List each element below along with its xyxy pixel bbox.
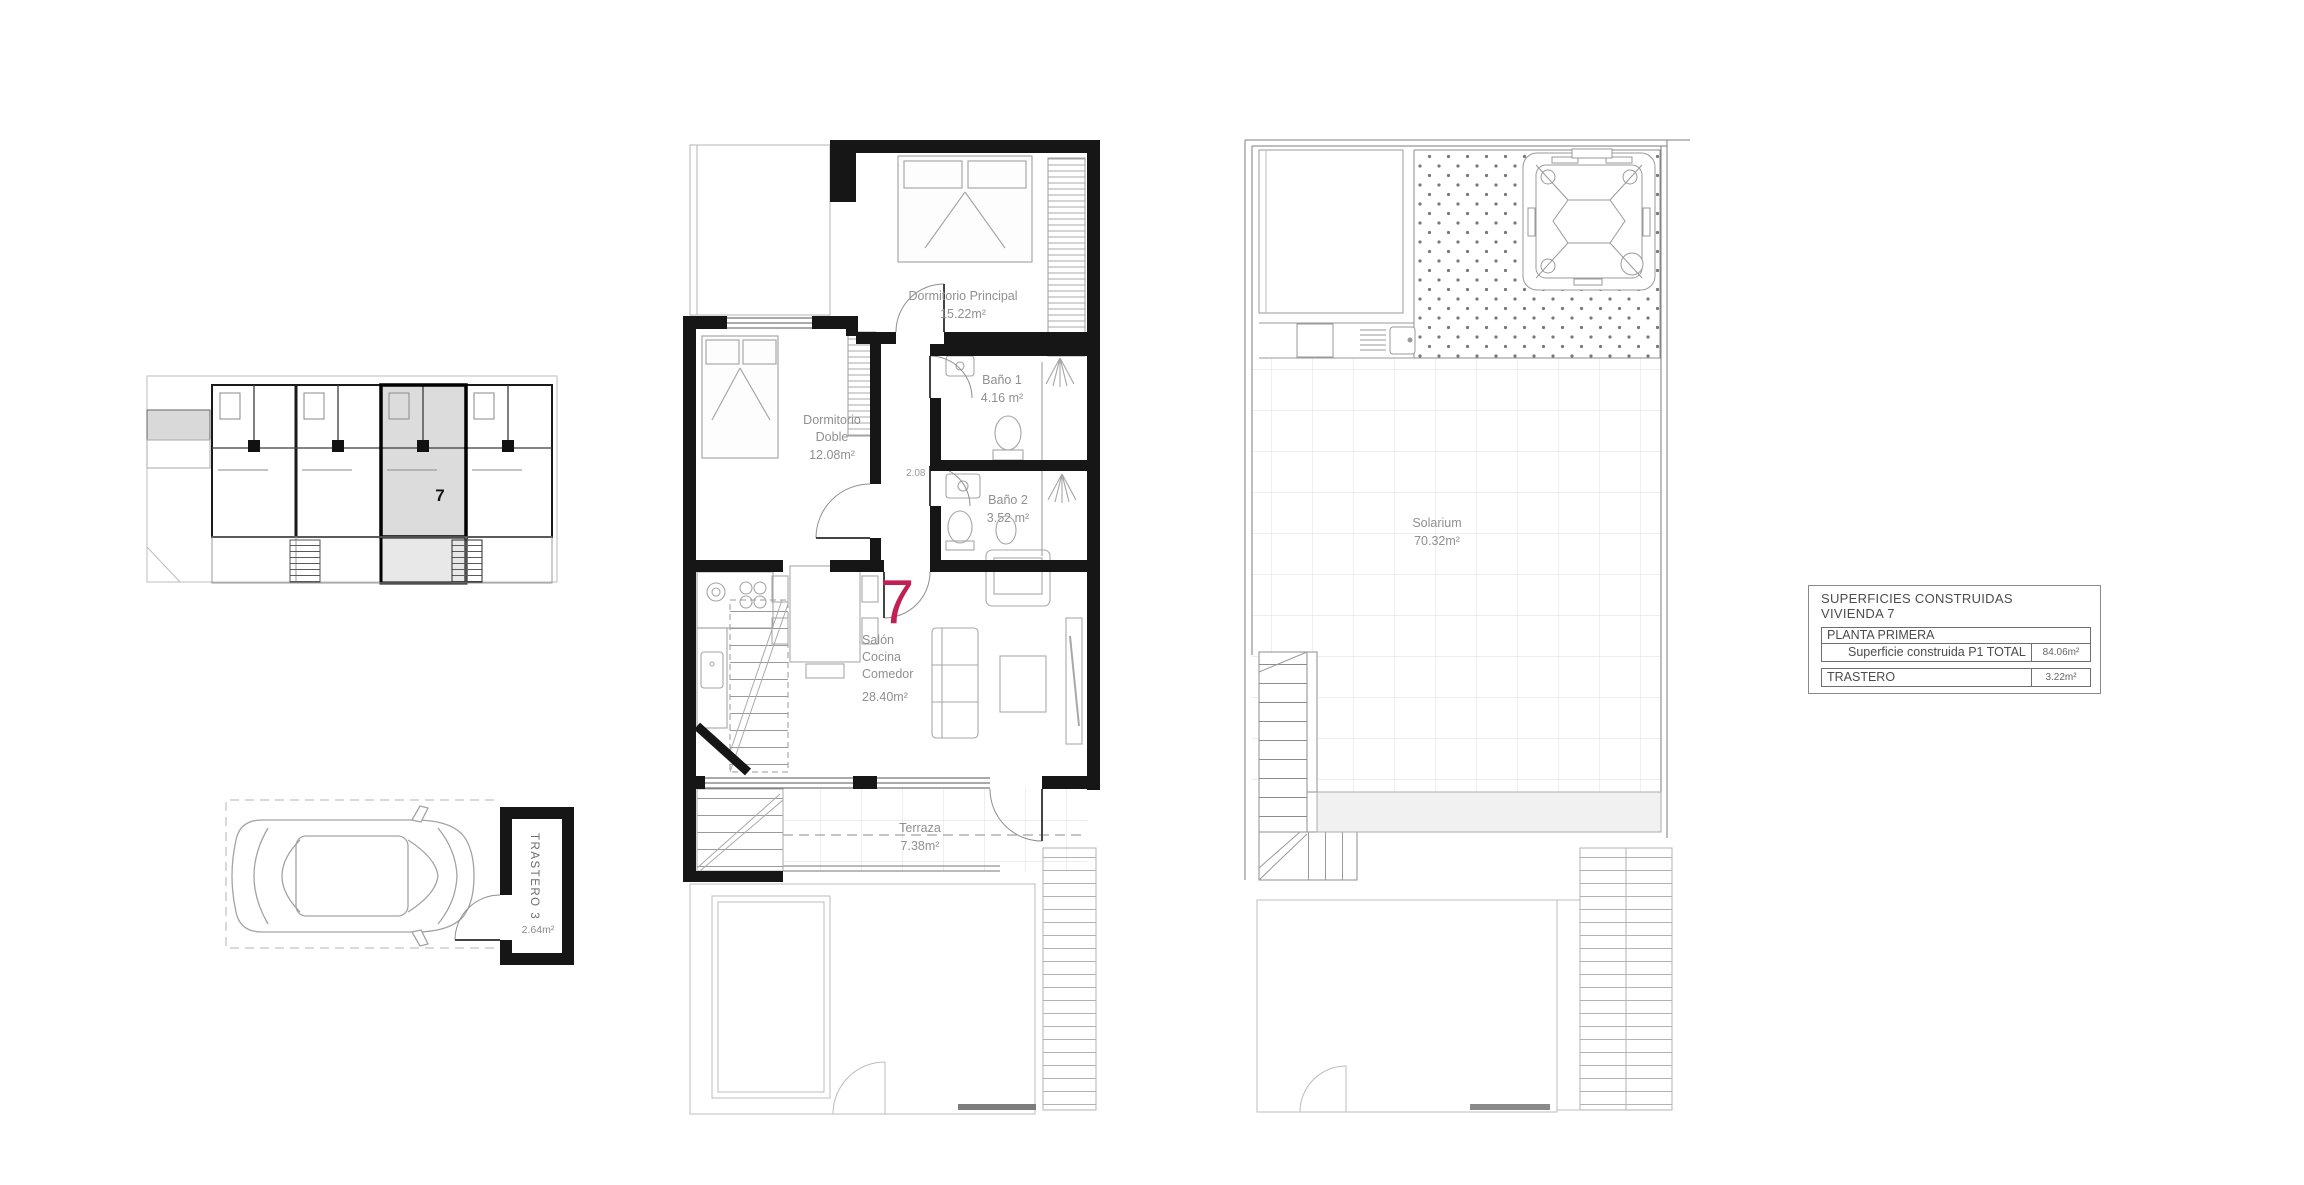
- legend-p1-label: Superficie construida P1 TOTAL: [1822, 644, 2031, 661]
- room-label-bano2: Baño 2 3.52 m²: [987, 492, 1029, 527]
- kitchenette-icon: [1259, 323, 1415, 358]
- room-label-salon: Salón Cocina Comedor 28.40m²: [862, 632, 913, 706]
- floor-plan-sheet: 7 TRASTERO 3 2.64m² Dormitorio Principal…: [0, 0, 2304, 1185]
- trastero-area-label: 2.64m²: [522, 924, 555, 936]
- room-label-dormitorio-principal: Dormitorio Principal 15.22m²: [908, 288, 1017, 323]
- trastero-label: TRASTERO 3: [528, 833, 540, 925]
- legend-p1-value: 84.06m²: [2031, 644, 2090, 661]
- wardrobe-icon: [1048, 158, 1085, 356]
- site-key-plan-drawing: [147, 376, 557, 583]
- key-plan-unit-number: 7: [435, 486, 444, 506]
- room-label-terraza: Terraza 7.38m²: [899, 820, 941, 855]
- dimension-label: 2.08: [906, 468, 925, 479]
- legend-trastero-value: 3.22m²: [2031, 669, 2090, 686]
- legend-title-line2: VIVIENDA 7: [1821, 606, 2091, 621]
- legend-planta-header: PLANTA PRIMERA: [1822, 628, 2090, 644]
- room-label-dormitorio-doble: Dormitorio Doble 12.08m²: [803, 412, 861, 464]
- surface-legend: SUPERFICIES CONSTRUIDAS VIVIENDA 7 PLANT…: [1808, 585, 2101, 694]
- jacuzzi-icon: [1523, 149, 1655, 290]
- room-label-solarium: Solarium 70.32m²: [1412, 515, 1461, 550]
- legend-planta-table: PLANTA PRIMERA Superficie construida P1 …: [1821, 627, 2091, 662]
- legend-trastero-table: TRASTERO 3.22m²: [1821, 668, 2091, 687]
- unit-number: 7: [880, 572, 914, 634]
- car-icon: [232, 806, 474, 946]
- living-furniture-icon: [772, 550, 1082, 744]
- legend-trastero-label: TRASTERO: [1822, 669, 2031, 686]
- roof-plan-drawing: [1245, 140, 1690, 1112]
- room-label-bano1: Baño 1 4.16 m²: [981, 372, 1023, 407]
- legend-title-line1: SUPERFICIES CONSTRUIDAS: [1821, 591, 2091, 606]
- garage-plan-drawing: [226, 800, 574, 965]
